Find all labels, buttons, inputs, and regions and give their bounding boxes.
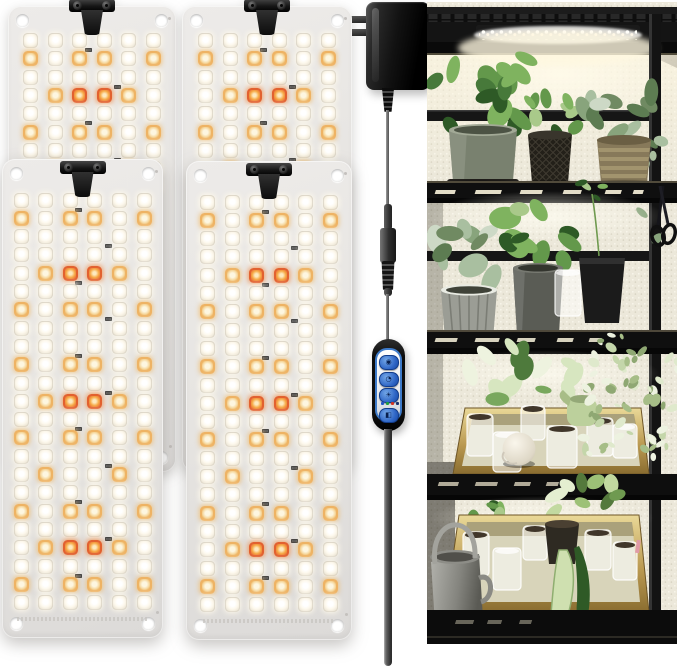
led-warm xyxy=(63,357,78,372)
led-red xyxy=(63,266,78,281)
led-white xyxy=(48,33,63,48)
led-white xyxy=(137,376,152,391)
led-white xyxy=(14,321,29,336)
led-warm xyxy=(225,469,240,484)
led-white xyxy=(296,70,311,85)
led-white xyxy=(200,524,215,539)
mounting-hole xyxy=(142,167,155,180)
led-warm xyxy=(274,506,289,521)
led-warm xyxy=(298,268,313,283)
led-white xyxy=(298,249,313,264)
led-white xyxy=(87,229,102,244)
soil-top xyxy=(587,530,609,536)
mounting-clip xyxy=(244,0,290,35)
led-warm xyxy=(249,304,264,319)
panel-surface xyxy=(186,161,352,640)
led-white xyxy=(247,70,262,85)
led-warm xyxy=(296,88,311,103)
led-white xyxy=(200,341,215,356)
led-white xyxy=(112,229,127,244)
led-white xyxy=(225,231,240,246)
cup-rim xyxy=(495,548,519,554)
alignment-dot xyxy=(344,17,347,20)
led-white xyxy=(112,577,127,592)
led-white xyxy=(63,376,78,391)
led-warm xyxy=(14,504,29,519)
led-warm xyxy=(200,579,215,594)
led-warm xyxy=(200,432,215,447)
led-white xyxy=(249,451,264,466)
led-red xyxy=(247,88,262,103)
clip-screw xyxy=(250,165,259,174)
led-white xyxy=(323,341,338,356)
product-image-canvas: ◉◔☀◧ xyxy=(0,0,679,671)
led-white xyxy=(63,321,78,336)
led-white xyxy=(97,106,112,121)
soil-top xyxy=(525,526,545,532)
led-white xyxy=(298,597,313,612)
led-warm xyxy=(247,51,262,66)
controller-face: ◉◔☀◧ xyxy=(375,348,402,422)
led-white xyxy=(97,33,112,48)
led-red xyxy=(274,396,289,411)
led-white xyxy=(323,249,338,264)
led-white xyxy=(48,51,63,66)
led-warm xyxy=(249,432,264,447)
led-white xyxy=(112,284,127,299)
clip-stem xyxy=(72,172,94,197)
led-white xyxy=(23,106,38,121)
led-warm xyxy=(249,359,264,374)
smd-component xyxy=(262,502,269,506)
led-warm xyxy=(48,88,63,103)
led-warm xyxy=(38,467,53,482)
clip-screw xyxy=(277,1,286,10)
led-white xyxy=(223,70,238,85)
led-red xyxy=(272,88,287,103)
led-white xyxy=(323,268,338,283)
led-white xyxy=(200,378,215,393)
led-white xyxy=(48,70,63,85)
led-white xyxy=(63,485,78,500)
led-warm xyxy=(225,268,240,283)
led-white xyxy=(14,540,29,555)
connector-grip xyxy=(381,261,395,290)
led-white xyxy=(63,284,78,299)
power-button-icon: ◉ xyxy=(385,359,391,366)
seedling-cup xyxy=(467,414,493,456)
led-white xyxy=(249,249,264,264)
led-warm xyxy=(137,211,152,226)
led-warm xyxy=(198,51,213,66)
led-white xyxy=(38,284,53,299)
led-white xyxy=(63,449,78,464)
led-warm xyxy=(298,469,313,484)
led-white xyxy=(14,485,29,500)
led-white xyxy=(274,597,289,612)
led-white xyxy=(38,412,53,427)
led-white xyxy=(223,33,238,48)
led-white xyxy=(225,432,240,447)
strain-relief xyxy=(380,88,396,112)
led-warm xyxy=(112,394,127,409)
led-warm xyxy=(72,125,87,140)
led-white xyxy=(14,266,29,281)
led-white xyxy=(38,211,53,226)
led-warm xyxy=(137,430,152,445)
smd-component xyxy=(105,317,112,321)
led-white xyxy=(198,143,213,158)
led-warm xyxy=(274,304,289,319)
led-red xyxy=(274,542,289,557)
led-white xyxy=(137,193,152,208)
spectrum-button-icon: ◧ xyxy=(385,412,392,419)
led-white xyxy=(14,595,29,610)
led-white xyxy=(274,323,289,338)
smd-component xyxy=(262,283,269,287)
led-white xyxy=(63,522,78,537)
led-white xyxy=(298,414,313,429)
led-white xyxy=(323,469,338,484)
led-white xyxy=(137,412,152,427)
led-white xyxy=(14,193,29,208)
clip-screw xyxy=(279,165,288,174)
led-red xyxy=(87,540,102,555)
led-white xyxy=(87,595,102,610)
led-warm xyxy=(137,504,152,519)
led-white xyxy=(112,339,127,354)
alignment-dot xyxy=(156,611,159,614)
led-red xyxy=(97,88,112,103)
smd-component xyxy=(262,576,269,580)
led-warm xyxy=(298,396,313,411)
controller-cable xyxy=(386,294,389,342)
led-warm xyxy=(146,51,161,66)
led-white xyxy=(223,51,238,66)
led-white xyxy=(249,231,264,246)
timer-button-icon: ◔ xyxy=(385,376,391,383)
led-white xyxy=(14,247,29,262)
led-white xyxy=(321,143,336,158)
led-warm xyxy=(112,467,127,482)
led-warm xyxy=(323,579,338,594)
led-white xyxy=(97,70,112,85)
brightness-button-icon: ☀ xyxy=(385,392,391,399)
led-warm xyxy=(274,359,289,374)
led-white xyxy=(321,33,336,48)
led-warm xyxy=(321,125,336,140)
led-white xyxy=(14,449,29,464)
led-white xyxy=(298,487,313,502)
led-white xyxy=(249,469,264,484)
led-warm xyxy=(323,432,338,447)
led-warm xyxy=(87,357,102,372)
led-white xyxy=(200,597,215,612)
led-warm xyxy=(225,542,240,557)
soil-top xyxy=(469,414,491,420)
led-white xyxy=(72,33,87,48)
led-white xyxy=(137,485,152,500)
led-warm xyxy=(87,302,102,317)
leaf xyxy=(486,392,510,406)
led-white xyxy=(48,125,63,140)
led-white xyxy=(137,229,152,244)
led-white xyxy=(38,522,53,537)
connector-barrel xyxy=(380,228,396,263)
led-white xyxy=(87,449,102,464)
led-white xyxy=(274,561,289,576)
led-white xyxy=(23,70,38,85)
timer-button: ◔ xyxy=(379,372,399,387)
clip-screw xyxy=(102,1,111,10)
led-white xyxy=(23,143,38,158)
adapter-body xyxy=(366,2,430,90)
led-warm xyxy=(63,430,78,445)
led-white xyxy=(14,467,29,482)
led-white xyxy=(323,396,338,411)
led-warm xyxy=(14,211,29,226)
led-white xyxy=(296,33,311,48)
led-white xyxy=(112,559,127,574)
led-warm xyxy=(97,125,112,140)
smd-component xyxy=(291,246,298,250)
mounting-hole xyxy=(10,167,23,180)
soil-top xyxy=(615,542,635,548)
led-white xyxy=(38,485,53,500)
led-warm xyxy=(274,213,289,228)
led-white xyxy=(63,247,78,262)
led-white xyxy=(298,341,313,356)
mounting-clip xyxy=(246,163,292,199)
led-warm xyxy=(321,51,336,66)
led-white xyxy=(321,70,336,85)
led-white xyxy=(87,559,102,574)
led-white xyxy=(137,394,152,409)
alignment-dot xyxy=(155,170,158,173)
led-white xyxy=(38,504,53,519)
led-red xyxy=(63,394,78,409)
led-red xyxy=(72,88,87,103)
led-warm xyxy=(23,125,38,140)
mounting-hole xyxy=(331,169,344,182)
connector-sleeve xyxy=(384,204,392,230)
led-white xyxy=(14,284,29,299)
mounting-clip xyxy=(69,0,115,35)
led-white xyxy=(112,449,127,464)
led-white xyxy=(87,376,102,391)
led-red xyxy=(87,394,102,409)
power-button: ◉ xyxy=(379,355,399,370)
panel-surface xyxy=(2,159,163,638)
led-white xyxy=(274,487,289,502)
led-warm xyxy=(63,211,78,226)
led-white xyxy=(298,359,313,374)
led-warm xyxy=(14,357,29,372)
led-white xyxy=(225,506,240,521)
led-white xyxy=(146,88,161,103)
led-white xyxy=(198,33,213,48)
ceramic-pot xyxy=(447,124,519,188)
led-white xyxy=(323,561,338,576)
led-white xyxy=(38,302,53,317)
led-white xyxy=(121,70,136,85)
led-white xyxy=(14,339,29,354)
led-white xyxy=(87,284,102,299)
led-red xyxy=(63,540,78,555)
led-white xyxy=(249,487,264,502)
led-white xyxy=(87,339,102,354)
led-white xyxy=(225,359,240,374)
led-white xyxy=(323,451,338,466)
led-white xyxy=(298,195,313,210)
smd-component xyxy=(260,121,267,125)
led-warm xyxy=(112,540,127,555)
led-white xyxy=(112,211,127,226)
mounting-hole xyxy=(155,14,168,27)
mounting-hole xyxy=(331,14,344,27)
led-white xyxy=(23,33,38,48)
led-white xyxy=(200,231,215,246)
status-indicator xyxy=(396,402,399,405)
led-white xyxy=(146,143,161,158)
led-white xyxy=(298,231,313,246)
led-warm xyxy=(249,213,264,228)
led-warm xyxy=(63,577,78,592)
led-warm xyxy=(274,432,289,447)
led-white xyxy=(146,70,161,85)
mounting-clip xyxy=(60,161,106,197)
led-white xyxy=(137,595,152,610)
panel-print xyxy=(203,619,335,623)
clip-stem xyxy=(81,10,103,35)
led-white xyxy=(38,357,53,372)
led-white xyxy=(38,595,53,610)
led-white xyxy=(274,524,289,539)
led-white xyxy=(137,467,152,482)
led-warm xyxy=(225,396,240,411)
soil-top xyxy=(523,406,543,412)
led-white xyxy=(112,302,127,317)
led-warm xyxy=(298,542,313,557)
led-warm xyxy=(137,357,152,372)
led-white xyxy=(112,595,127,610)
led-white xyxy=(198,106,213,121)
led-white xyxy=(87,412,102,427)
led-white xyxy=(63,467,78,482)
led-white xyxy=(249,341,264,356)
led-white xyxy=(14,559,29,574)
led-white xyxy=(225,286,240,301)
led-white xyxy=(274,286,289,301)
led-white xyxy=(298,561,313,576)
led-warm xyxy=(87,211,102,226)
led-white xyxy=(200,469,215,484)
led-white xyxy=(87,522,102,537)
led-white xyxy=(137,449,152,464)
led-white xyxy=(112,357,127,372)
alignment-dot xyxy=(344,172,347,175)
led-white xyxy=(249,323,264,338)
alignment-dot xyxy=(345,613,348,616)
clip-screw xyxy=(248,1,257,10)
led-white xyxy=(223,125,238,140)
led-white xyxy=(274,414,289,429)
led-warm xyxy=(272,51,287,66)
smd-component xyxy=(85,121,92,125)
led-white xyxy=(296,143,311,158)
led-white xyxy=(298,451,313,466)
led-white xyxy=(225,414,240,429)
led-white xyxy=(48,143,63,158)
panel-print xyxy=(17,617,149,621)
led-white xyxy=(200,195,215,210)
led-white xyxy=(225,249,240,264)
led-white xyxy=(137,559,152,574)
led-white xyxy=(296,125,311,140)
led-white xyxy=(272,106,287,121)
led-white xyxy=(247,33,262,48)
led-white xyxy=(14,522,29,537)
led-white xyxy=(298,524,313,539)
led-warm xyxy=(272,125,287,140)
smd-component xyxy=(105,391,112,395)
led-white xyxy=(225,524,240,539)
led-white xyxy=(298,286,313,301)
led-white xyxy=(225,579,240,594)
led-white xyxy=(298,506,313,521)
led-warm xyxy=(200,213,215,228)
led-white xyxy=(112,247,127,262)
inline-controller: ◉◔☀◧ xyxy=(372,339,405,431)
alignment-dot xyxy=(168,17,171,20)
led-warm xyxy=(63,504,78,519)
led-white xyxy=(298,213,313,228)
led-white xyxy=(112,412,127,427)
led-white xyxy=(274,341,289,356)
led-warm xyxy=(247,125,262,140)
led-white xyxy=(249,561,264,576)
led-white xyxy=(200,561,215,576)
led-warm xyxy=(137,577,152,592)
status-indicator xyxy=(381,402,384,405)
led-red xyxy=(249,268,264,283)
smd-component xyxy=(262,356,269,360)
led-white xyxy=(323,195,338,210)
led-warm xyxy=(137,302,152,317)
led-warm xyxy=(112,266,127,281)
led-white xyxy=(321,88,336,103)
led-warm xyxy=(38,540,53,555)
led-white xyxy=(87,485,102,500)
led-warm xyxy=(87,577,102,592)
led-white xyxy=(225,451,240,466)
led-white xyxy=(112,321,127,336)
led-white xyxy=(225,304,240,319)
led-white xyxy=(323,231,338,246)
led-white xyxy=(296,106,311,121)
led-red xyxy=(87,266,102,281)
led-white xyxy=(72,143,87,158)
led-warm xyxy=(87,504,102,519)
led-white xyxy=(274,231,289,246)
led-white xyxy=(137,284,152,299)
led-white xyxy=(48,106,63,121)
led-white xyxy=(272,33,287,48)
smd-component xyxy=(262,210,269,214)
led-white xyxy=(249,524,264,539)
led-white xyxy=(137,540,152,555)
led-white xyxy=(225,378,240,393)
